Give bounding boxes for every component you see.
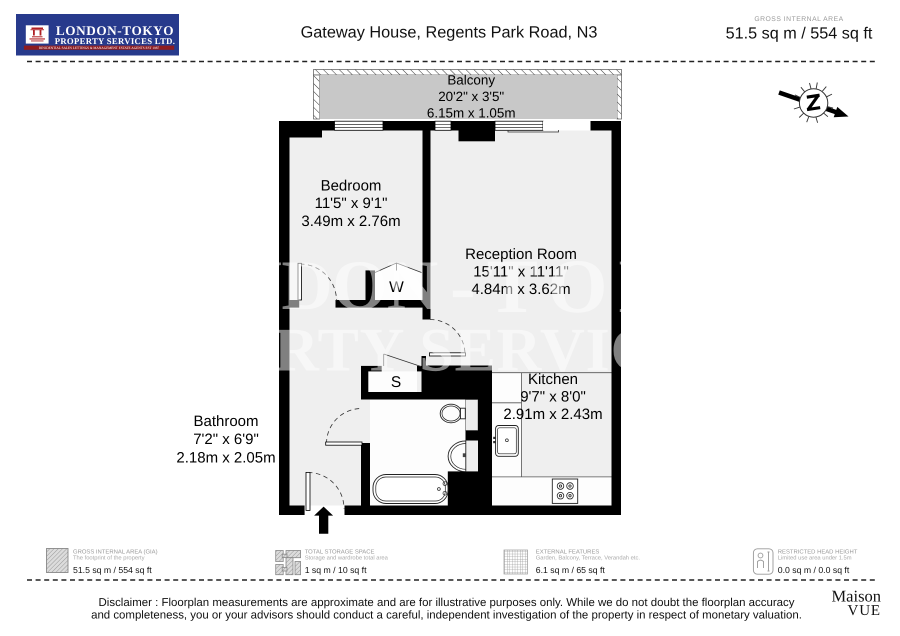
svg-text:6.1 sq m / 65 sq ft: 6.1 sq m / 65 sq ft (536, 565, 606, 575)
svg-text:Balcony: Balcony (447, 73, 495, 88)
svg-text:Limited use area under 1.5m: Limited use area under 1.5m (778, 555, 852, 562)
svg-text:Storage and wardrobe total are: Storage and wardrobe total area (305, 555, 389, 562)
svg-text:9'7" x 8'0": 9'7" x 8'0" (520, 388, 586, 405)
svg-text:6.15m x 1.05m: 6.15m x 1.05m (427, 106, 516, 121)
svg-text:51.5 sq m / 554 sq ft: 51.5 sq m / 554 sq ft (726, 25, 873, 43)
svg-text:Gateway House, Regents Park Ro: Gateway House, Regents Park Road, N3 (301, 23, 598, 41)
svg-text:1 sq m / 10 sq ft: 1 sq m / 10 sq ft (305, 565, 367, 575)
svg-text:Garden, Balcony, Terrace, Vera: Garden, Balcony, Terrace, Verandah etc. (536, 555, 641, 562)
svg-text:Bathroom: Bathroom (193, 413, 258, 430)
svg-text:LONDON: LONDON (129, 247, 438, 325)
svg-text:TOTAL STORAGE SPACE: TOTAL STORAGE SPACE (305, 548, 375, 555)
svg-text:EXTERNAL FEATURES: EXTERNAL FEATURES (536, 548, 600, 555)
svg-text:3.49m x 2.76m: 3.49m x 2.76m (301, 213, 400, 230)
svg-text:PROPERTY SERVICES LTD.: PROPERTY SERVICES LTD. (55, 36, 175, 46)
svg-text:2.91m x 2.43m: 2.91m x 2.43m (503, 406, 602, 423)
svg-text:7'2" x 6'9": 7'2" x 6'9" (193, 431, 259, 448)
svg-text:Bedroom: Bedroom (321, 177, 382, 194)
svg-text:GROSS INTERNAL AREA: GROSS INTERNAL AREA (754, 16, 843, 23)
svg-text:PROPERTY SERVICES LTD.: PROPERTY SERVICES LTD. (60, 317, 890, 385)
svg-text:The footprint of the property: The footprint of the property (73, 555, 145, 562)
svg-text:GROSS INTERNAL AREA (GIA): GROSS INTERNAL AREA (GIA) (73, 548, 158, 555)
svg-text:0.0 sq m / 0.0 sq ft: 0.0 sq m / 0.0 sq ft (778, 565, 850, 575)
svg-text:RESIDENTIAL SALES LETTINGS &: RESIDENTIAL SALES LETTINGS & MANAGEMENT … (39, 46, 160, 50)
svg-text:and completeness, you or your: and completeness, you or your advisors s… (91, 610, 802, 622)
svg-text:51.5 sq m / 554 sq ft: 51.5 sq m / 554 sq ft (73, 565, 152, 575)
svg-text:11'5" x 9'1": 11'5" x 9'1" (315, 195, 388, 212)
svg-text:Disclaimer : Floorplan measure: Disclaimer : Floorplan measurements are … (99, 597, 795, 609)
svg-text:2.18m x 2.05m: 2.18m x 2.05m (176, 449, 275, 466)
svg-text:VUE: VUE (847, 603, 881, 619)
svg-text:RESTRICTED HEAD HEIGHT: RESTRICTED HEAD HEIGHT (778, 548, 858, 555)
svg-text:20'2" x 3'5": 20'2" x 3'5" (438, 89, 504, 104)
